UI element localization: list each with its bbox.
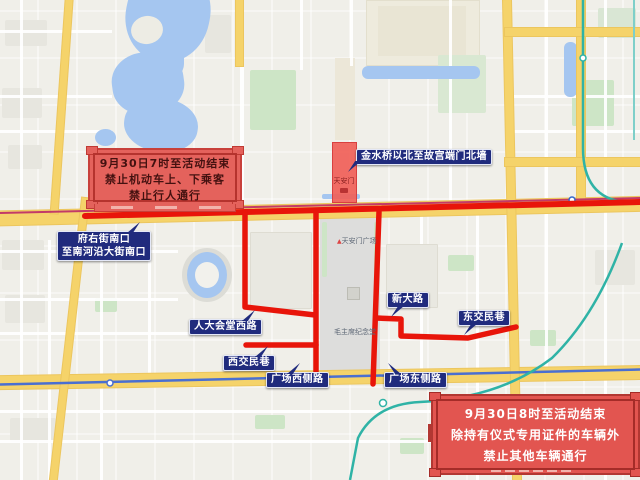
callout-xindalu: 新大路 [387,292,429,308]
notice-line: 禁止机动车上、下乘客 [105,171,225,187]
callout-xijiaomin: 西交民巷 [223,355,275,371]
metro-station [580,55,586,61]
metro-line-teal-north [583,0,625,202]
callout-fuyou: 府右街南口 至南河沿大街南口 [57,231,151,261]
callout-square-east-text: 广场东侧路 [389,374,442,385]
map-canvas[interactable]: 天安门 ▲天安门广场 毛主席纪念堂 金水桥以北至故宫端门北墙 府右街南口 至南河… [0,0,640,480]
frame-notch [199,206,221,209]
callout-square-east: 广场东侧路 [384,372,447,388]
notice-vehicle-ban-panel: 9月30日8时至活动结束 除持有仪式专用证件的车辆外 禁止其他车辆通行 [436,399,635,470]
notice-pedestrian-ban-panel: 9月30日7时至活动结束 禁止机动车上、下乘客 禁止行人通行 [93,153,237,202]
callout-dongjiaomin-text: 东交民巷 [463,312,505,323]
callout-renda-west: 人大会堂西路 [189,319,262,335]
notice-line: 9月30日8时至活动结束 [465,405,606,422]
callout-jinshui-zone: 金水桥以北至故宫端门北墙 [356,149,492,165]
poi-tiananmen-square: ▲天安门广场 [337,236,377,246]
metro-station [107,380,113,386]
frame-notch [155,206,177,209]
frame-notch [111,206,133,209]
callout-dongjiaomin: 东交民巷 [458,310,510,326]
notice-line: 除持有仪式专用证件的车辆外 [451,426,620,443]
notice-line: 禁止行人通行 [129,187,201,203]
closure-renda-west-road [245,212,315,315]
frame-slit [428,424,432,442]
callout-xindalu-text: 新大路 [392,294,424,305]
callout-fuyou-line1: 府右街南口 [62,233,146,246]
callout-square-west: 广场西侧路 [266,372,329,388]
callout-renda-west-text: 人大会堂西路 [194,321,257,332]
notice-line: 9月30日7时至活动结束 [100,155,231,171]
metro-station [380,400,387,407]
notice-vehicle-ban: 9月30日8时至活动结束 除持有仪式专用证件的车辆外 禁止其他车辆通行 [431,394,640,475]
callout-square-west-text: 广场西侧路 [271,374,324,385]
notice-pedestrian-ban: 9月30日7时至活动结束 禁止机动车上、下乘客 禁止行人通行 [88,148,242,207]
callout-fuyou-line2: 至南河沿大街南口 [62,246,146,259]
poi-memorial-hall: 毛主席纪念堂 [334,327,376,337]
frame-pedestal [94,204,236,212]
notice-line: 禁止其他车辆通行 [483,447,587,464]
callout-jinshui-zone-text: 金水桥以北至故宫端门北墙 [361,151,487,162]
callout-xijiaomin-text: 西交民巷 [228,357,270,368]
